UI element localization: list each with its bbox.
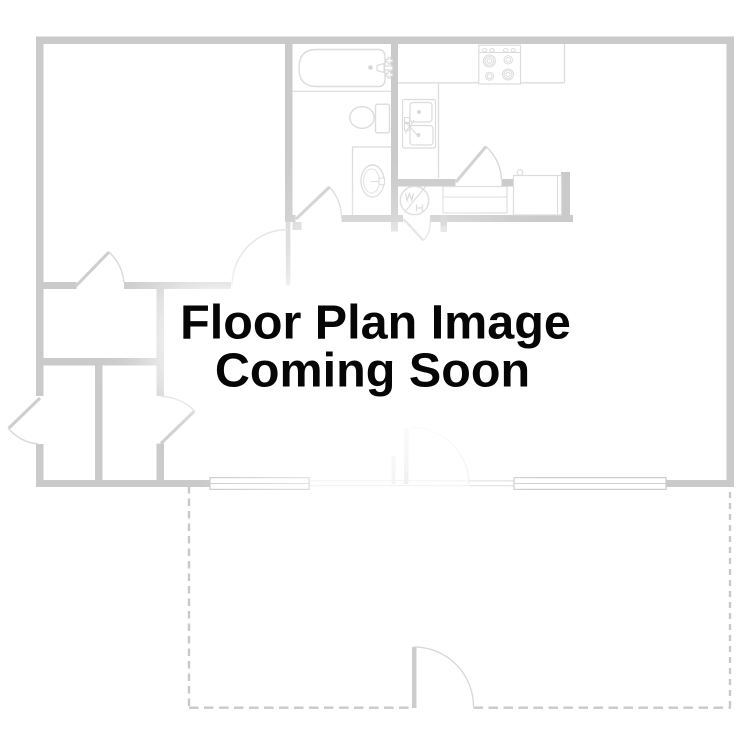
svg-text:Floor Plan Image: Floor Plan Image xyxy=(180,296,571,350)
svg-text:Coming Soon: Coming Soon xyxy=(215,344,530,398)
